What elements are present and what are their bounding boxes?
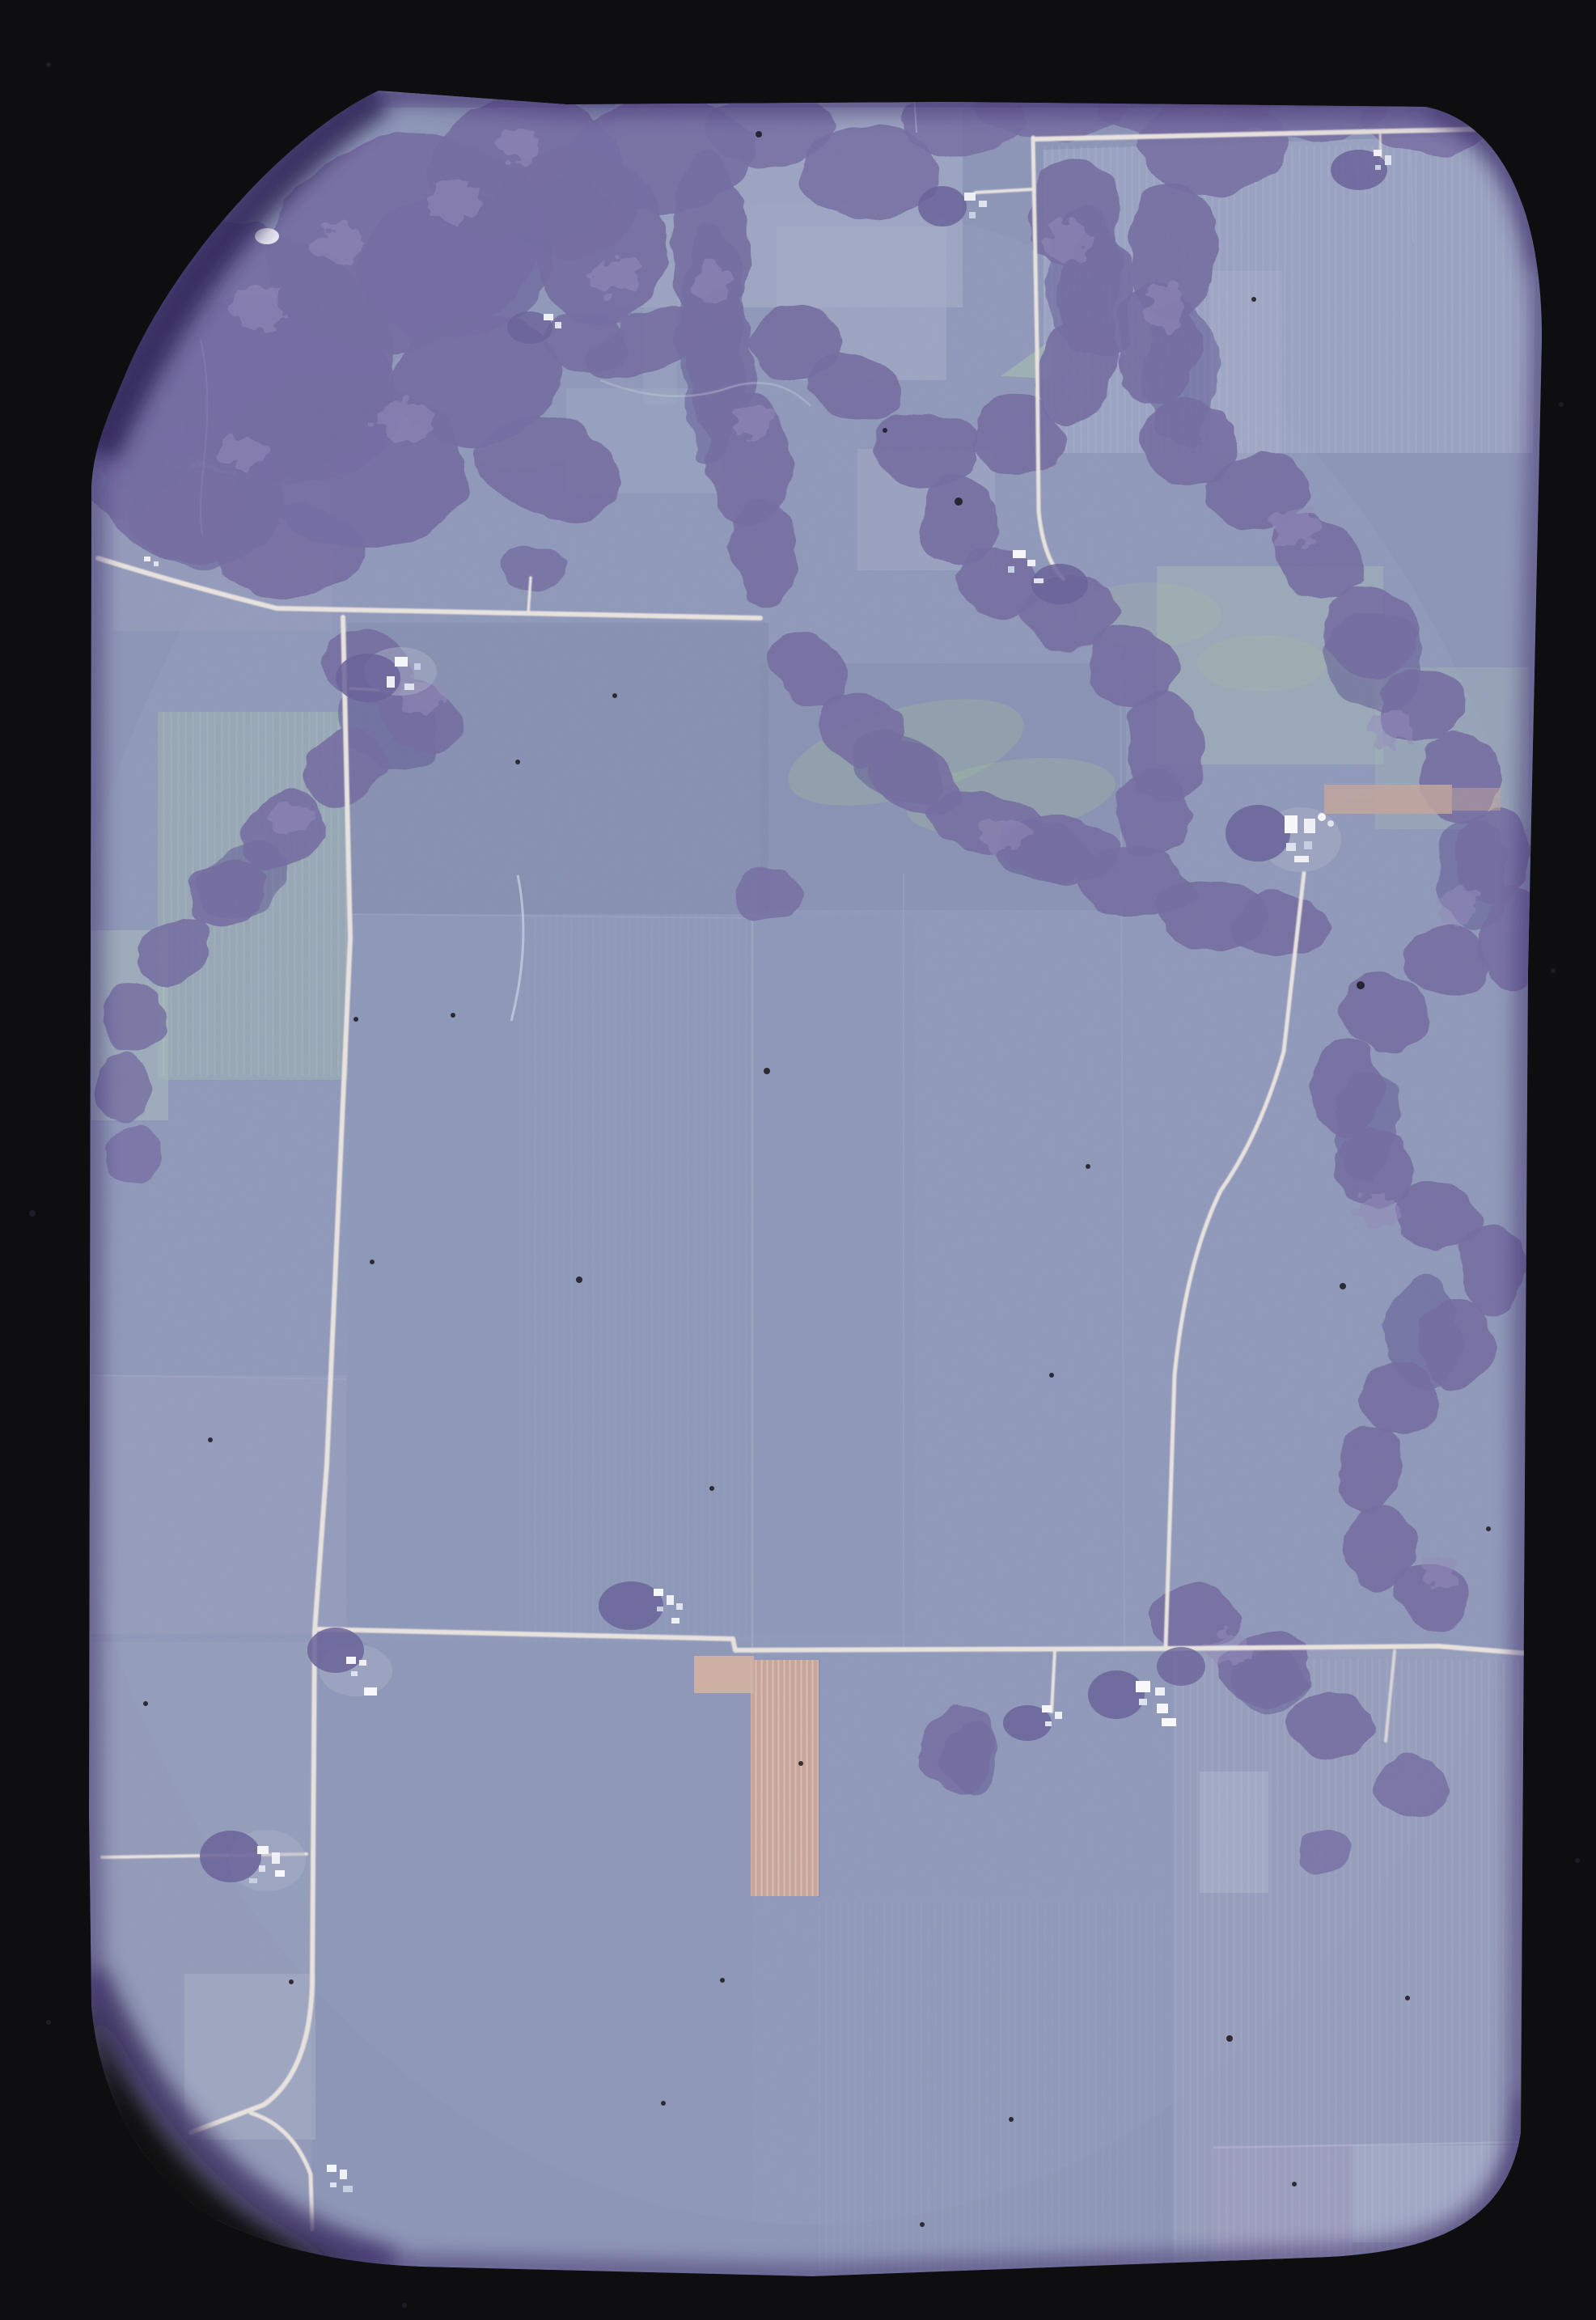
frame-speck xyxy=(46,62,51,67)
frame-speck xyxy=(402,2303,407,2308)
frame-speck xyxy=(1559,402,1564,407)
grain-overlay xyxy=(87,87,1545,2280)
aerial-photo-slide xyxy=(0,0,1596,2320)
frame-speck xyxy=(29,1210,36,1217)
frame-speck xyxy=(1575,1858,1580,1863)
frame-speck xyxy=(1551,968,1556,973)
slide-frame xyxy=(0,0,1596,2320)
film-grain xyxy=(87,87,1545,2280)
photo-area xyxy=(40,70,1577,2289)
frame-speck xyxy=(46,2020,51,2025)
